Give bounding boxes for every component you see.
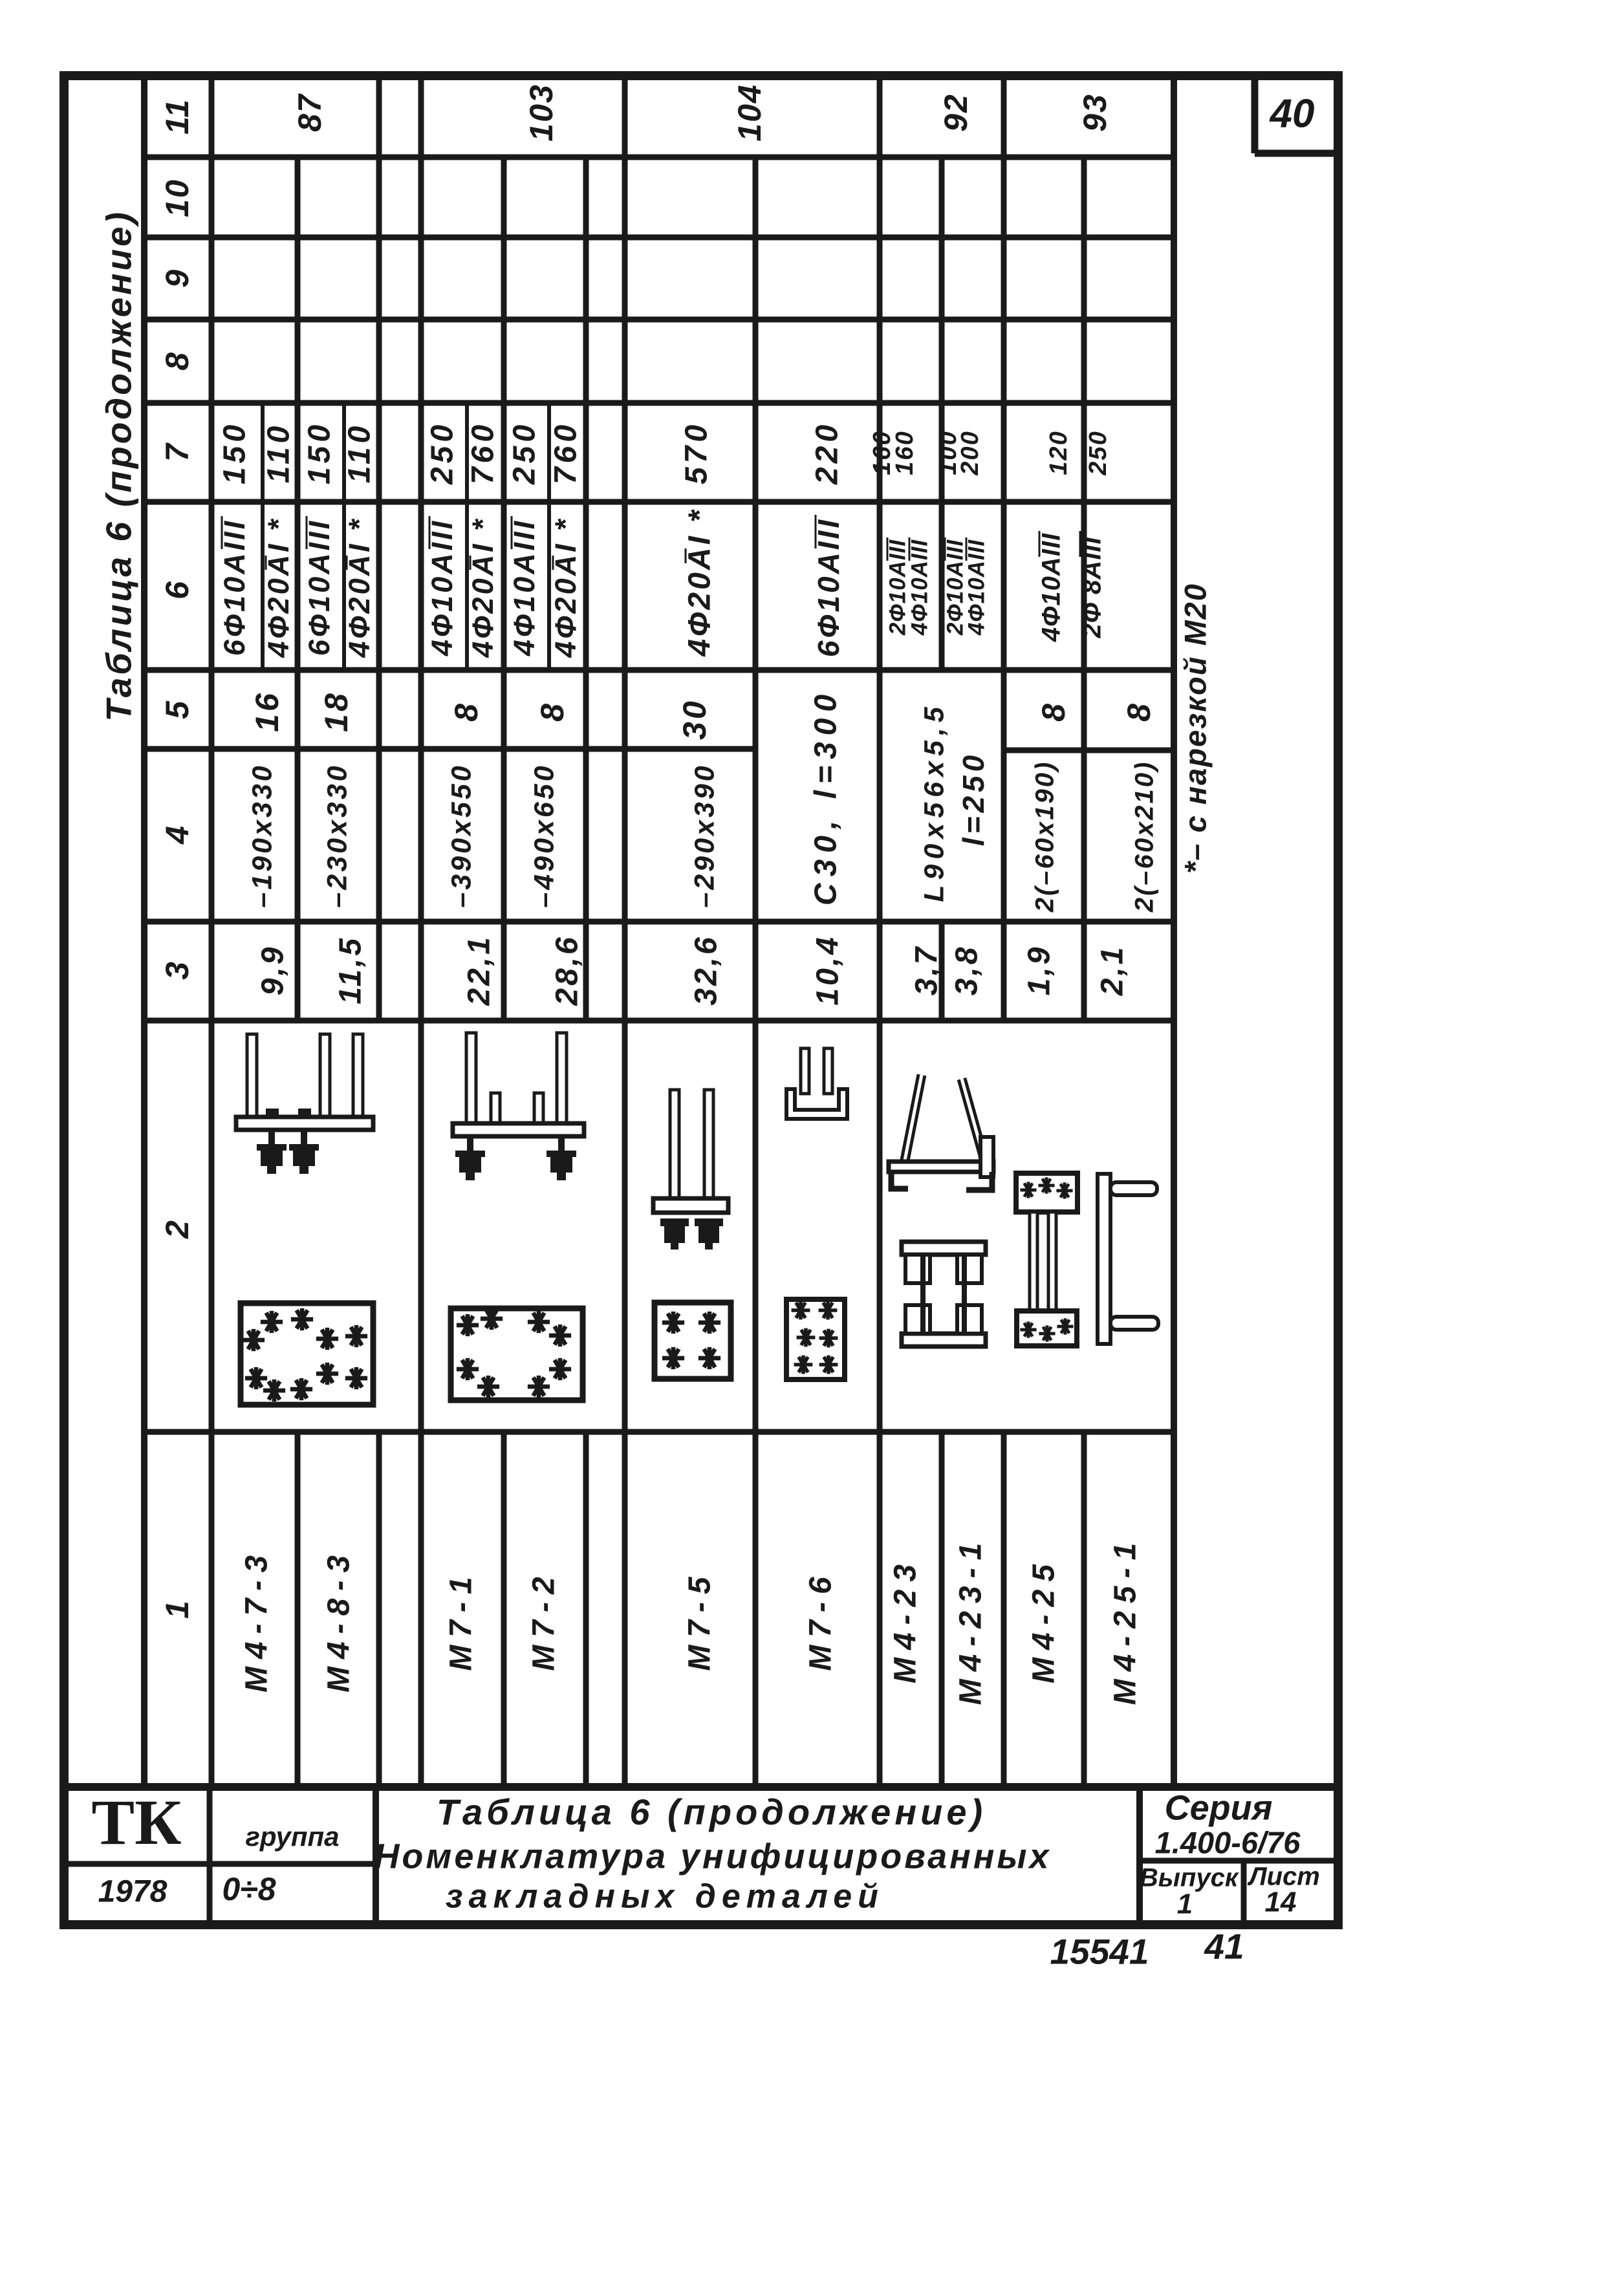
- svg-text:1: 1: [159, 1599, 195, 1619]
- svg-text:–190х330: –190х330: [246, 763, 277, 907]
- svg-text:3,8: 3,8: [950, 945, 984, 996]
- svg-text:8: 8: [1035, 701, 1072, 722]
- svg-text:*– с нарезкой М20: *– с нарезкой М20: [1178, 583, 1212, 874]
- svg-text:8: 8: [448, 701, 484, 722]
- svg-text:М7-6: М7-6: [804, 1569, 838, 1671]
- svg-text:4Ф20АI *: 4Ф20АI *: [343, 517, 376, 658]
- svg-text:6Ф10АIII: 6Ф10АIII: [812, 517, 845, 657]
- svg-text:10,4: 10,4: [811, 935, 845, 1005]
- svg-text:4: 4: [159, 825, 195, 845]
- svg-text:6: 6: [159, 580, 195, 600]
- svg-text:10: 10: [159, 179, 195, 217]
- svg-text:L90х56х5,5: L90х56х5,5: [918, 702, 949, 902]
- svg-text:8: 8: [159, 351, 195, 371]
- svg-text:220: 220: [810, 421, 845, 485]
- svg-text:200: 200: [957, 430, 984, 475]
- svg-text:1: 1: [1177, 1888, 1193, 1920]
- svg-text:М4-23-1: М4-23-1: [954, 1535, 988, 1705]
- svg-text:110: 110: [262, 422, 296, 484]
- svg-text:120: 120: [1045, 430, 1072, 475]
- svg-text:250: 250: [508, 421, 542, 485]
- svg-text:11,5: 11,5: [334, 936, 368, 1004]
- svg-text:16: 16: [249, 691, 285, 732]
- svg-text:Таблица 6 (продолжение): Таблица 6 (продолжение): [437, 1791, 986, 1832]
- svg-text:92: 92: [938, 93, 974, 132]
- svg-text:Серия: Серия: [1165, 1788, 1273, 1827]
- svg-text:4Ф10АIII: 4Ф10АIII: [907, 539, 932, 636]
- svg-text:760: 760: [549, 421, 583, 484]
- svg-text:ТК: ТК: [91, 1786, 181, 1858]
- svg-text:4Ф10АIII: 4Ф10АIII: [508, 519, 541, 656]
- svg-text:1,9: 1,9: [1023, 945, 1057, 996]
- svg-text:1978: 1978: [98, 1875, 168, 1909]
- svg-text:М4-25: М4-25: [1027, 1557, 1061, 1683]
- svg-text:4Ф10АIII: 4Ф10АIII: [1037, 533, 1066, 642]
- svg-text:103: 103: [523, 83, 559, 141]
- svg-text:150: 150: [218, 421, 252, 484]
- svg-text:Номенклатура унифицированных: Номенклатура унифицированных: [374, 1837, 1051, 1876]
- svg-text:4Ф10АIII: 4Ф10АIII: [964, 539, 989, 636]
- svg-text:30: 30: [677, 698, 713, 740]
- svg-text:150: 150: [303, 421, 337, 484]
- svg-text:М7-5: М7-5: [683, 1569, 717, 1671]
- svg-text:3: 3: [159, 960, 195, 980]
- svg-text:160: 160: [891, 430, 918, 475]
- svg-text:15541: 15541: [1050, 1932, 1149, 1972]
- svg-text:250: 250: [1085, 430, 1112, 475]
- svg-text:8: 8: [534, 701, 570, 722]
- svg-text:87: 87: [292, 93, 328, 132]
- svg-text:–290х390: –290х390: [689, 763, 720, 907]
- svg-text:М7-1: М7-1: [444, 1569, 479, 1671]
- svg-text:40: 40: [1269, 91, 1315, 136]
- svg-text:14: 14: [1265, 1887, 1297, 1918]
- svg-text:18: 18: [318, 691, 354, 732]
- svg-text:М7-2: М7-2: [527, 1569, 561, 1671]
- svg-text:4Ф20АI *: 4Ф20АI *: [262, 517, 295, 658]
- svg-text:2(–60х190): 2(–60х190): [1031, 761, 1059, 913]
- svg-text:2: 2: [159, 1219, 195, 1239]
- svg-text:11: 11: [159, 98, 195, 135]
- svg-text:93: 93: [1077, 93, 1113, 132]
- svg-text:0÷8: 0÷8: [222, 1871, 276, 1907]
- svg-text:41: 41: [1204, 1927, 1244, 1967]
- svg-text:4Ф20АI *: 4Ф20АI *: [683, 508, 717, 657]
- svg-text:3,7: 3,7: [910, 945, 944, 996]
- svg-text:2Ф 8АIII: 2Ф 8АIII: [1078, 536, 1107, 638]
- svg-text:М4-7-3: М4-7-3: [240, 1548, 274, 1693]
- svg-text:4Ф20АI *: 4Ф20АI *: [549, 517, 582, 658]
- svg-text:М4-8-3: М4-8-3: [322, 1548, 356, 1693]
- svg-text:22,1: 22,1: [462, 935, 497, 1006]
- svg-text:–390х550: –390х550: [446, 763, 477, 907]
- svg-text:6Ф10АIII: 6Ф10АIII: [303, 519, 336, 656]
- svg-text:570: 570: [680, 421, 714, 484]
- svg-text:2,1: 2,1: [1096, 945, 1130, 997]
- svg-text:группа: группа: [245, 1821, 339, 1852]
- svg-text:32,6: 32,6: [689, 935, 724, 1005]
- svg-text:6Ф10АIII: 6Ф10АIII: [218, 519, 251, 656]
- svg-text:закладных деталей: закладных деталей: [446, 1878, 884, 1916]
- svg-text:760: 760: [466, 421, 501, 484]
- svg-text:–490х650: –490х650: [528, 763, 559, 907]
- svg-text:Таблица 6 (продолжение): Таблица 6 (продолжение): [99, 210, 139, 722]
- svg-text:9: 9: [159, 268, 195, 288]
- svg-text:4Ф10АIII: 4Ф10АIII: [426, 519, 459, 656]
- svg-text:5: 5: [159, 700, 195, 719]
- svg-text:250: 250: [426, 421, 460, 485]
- svg-text:М4-25-1: М4-25-1: [1109, 1535, 1143, 1705]
- svg-text:7: 7: [159, 442, 195, 462]
- svg-text:С30, l=300: С30, l=300: [809, 688, 843, 905]
- svg-text:110: 110: [343, 422, 377, 484]
- svg-text:8: 8: [1121, 701, 1157, 722]
- svg-text:М4-23: М4-23: [889, 1557, 923, 1683]
- svg-text:28,6: 28,6: [550, 935, 585, 1006]
- svg-text:1.400-6/76: 1.400-6/76: [1155, 1825, 1301, 1859]
- svg-text:–230х330: –230х330: [321, 763, 352, 907]
- svg-text:104: 104: [731, 83, 768, 141]
- svg-text:9,9: 9,9: [256, 945, 290, 996]
- svg-text:2(–60х210): 2(–60х210): [1131, 761, 1159, 913]
- svg-text:l=250: l=250: [957, 752, 990, 846]
- svg-text:4Ф20АI *: 4Ф20АI *: [466, 517, 499, 658]
